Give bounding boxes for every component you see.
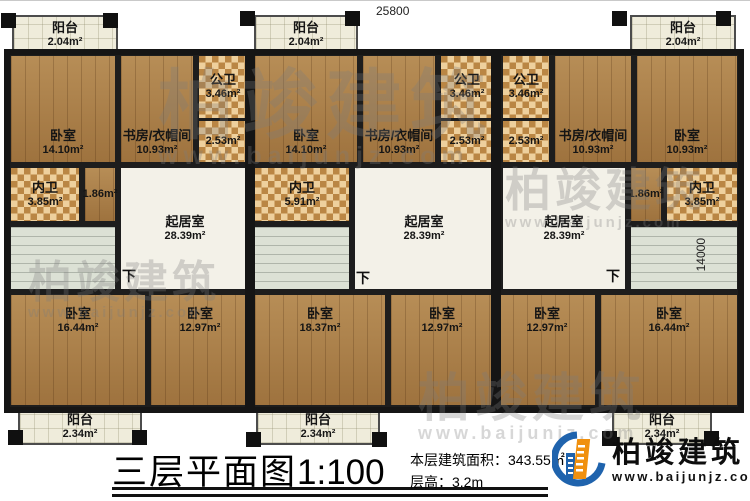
balcony-bottom-unit2: 阳台2.34m² <box>256 408 380 445</box>
column-marker <box>132 430 147 445</box>
column-marker <box>240 11 255 26</box>
column-marker <box>103 13 118 28</box>
stairs-down-label: 下 <box>356 268 370 288</box>
column-marker <box>1 13 16 28</box>
balcony-bottom-unit1: 阳台2.34m² <box>18 408 142 445</box>
floor-plan-canvas: 阳台2.04m² 阳台2.04m² 阳台2.04m² 卧室14.10m² 书房/… <box>0 0 750 501</box>
column-marker <box>612 11 627 26</box>
stairs-down-label: 下 <box>606 266 620 286</box>
page-border-line <box>0 0 750 1</box>
company-logo: 柏竣建筑 www.baijunjz.com <box>552 431 750 491</box>
party-wall-2 <box>491 50 501 413</box>
floor-height-line: 层高：3.2m <box>410 472 565 494</box>
title-underline <box>112 494 548 497</box>
column-marker <box>345 11 360 26</box>
company-logo-icon <box>552 431 606 491</box>
column-marker <box>716 11 731 26</box>
exterior-wall <box>4 49 744 413</box>
dimension-right: 14000 <box>694 238 708 271</box>
party-wall-1 <box>245 50 255 413</box>
plan-info: 本层建筑面积：343.55㎡ 层高：3.2m <box>410 450 565 493</box>
floor-area-line: 本层建筑面积：343.55㎡ <box>410 450 565 472</box>
dimension-top: 25800 <box>376 4 409 18</box>
company-logo-text: 柏竣建筑 www.baijunjz.com <box>612 438 750 485</box>
stairs-down-label: 下 <box>122 266 136 286</box>
column-marker <box>8 430 23 445</box>
